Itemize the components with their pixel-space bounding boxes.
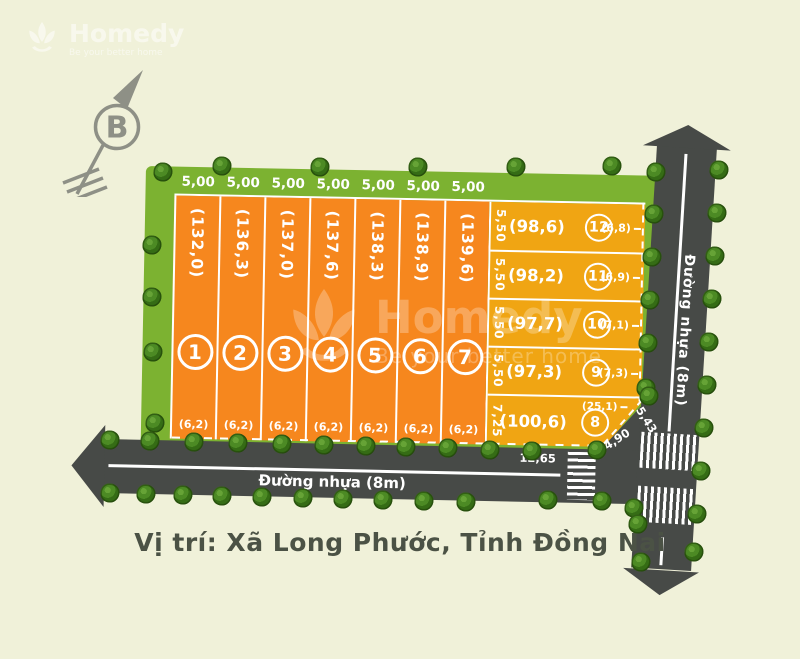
plot-number-badge: 2 — [222, 334, 259, 371]
plot-9: 5,50 (97,3) 9 (7,3) — [488, 346, 643, 397]
plot-frontage-label: (6,2) — [397, 422, 440, 436]
plot-number-badge: 1 — [177, 334, 214, 371]
vertical-plots-block: 5,00 (132,0) 1 (6,2) 5,00 (136,3) 2 (6,2… — [170, 196, 490, 445]
plot-1: 5,00 (132,0) 1 (6,2) — [172, 196, 222, 440]
plot-frontage-label: (6,2) — [262, 419, 305, 433]
site-plan: Homedy Be your better home B 5,00 (132,0… — [0, 0, 800, 659]
plot-width-label: 5,00 — [447, 179, 490, 196]
plot-area-label: (137,0) — [277, 210, 296, 281]
location-caption: Vị trí: Xã Long Phước, Tỉnh Đồng Nai — [0, 528, 800, 557]
junction-width-label: 12,65 — [503, 450, 573, 465]
homedy-logo-icon — [25, 20, 59, 58]
plot-2: 5,00 (136,3) 2 (6,2) — [217, 196, 267, 440]
compass-letter: B — [106, 111, 129, 146]
plot-area-label: (132,0) — [187, 208, 206, 279]
plot-frontage-label: (6,8) — [601, 221, 641, 235]
plot-frontage-label: (6,2) — [352, 421, 395, 435]
plot-frontage-label: (7,3) — [598, 366, 638, 380]
road-arrow-down-icon — [622, 568, 699, 598]
crosswalk-right-road-lower — [636, 486, 694, 525]
plot-frontage-label: (6,2) — [217, 418, 260, 432]
tree-icon — [603, 157, 622, 176]
plot-11: 5,50 (98,2) 11 (6,9) — [490, 250, 645, 301]
road-right-label: Đường nhựa (8m) — [672, 254, 697, 407]
road-arrow-left-icon — [71, 424, 106, 507]
plot-number-badge: 4 — [312, 336, 349, 373]
plot-10: 5,50 (97,7) 10 (7,1) — [489, 298, 644, 349]
plot-width-label: 5,00 — [222, 174, 265, 191]
plot-width-label: 5,00 — [402, 178, 445, 195]
road-bottom: Đường nhựa (8m) 12,65 — [102, 439, 649, 504]
plot-frontage-label: (6,2) — [307, 420, 350, 434]
plot-area-label: (137,6) — [322, 210, 341, 281]
crosswalk-bottom-road — [567, 452, 596, 501]
road-bottom-label: Đường nhựa (8m) — [252, 471, 412, 492]
plot-frontage-label: (6,2) — [172, 418, 215, 432]
plot-frontage-label: (25,1) — [582, 400, 628, 413]
land-parcel: 5,00 (132,0) 1 (6,2) 5,00 (136,3) 2 (6,2… — [140, 166, 663, 468]
horizontal-plots-block: 5,50 (98,6) 12 (6,8) 5,50 (98,2) 11 (6,9… — [485, 202, 646, 448]
plot-4: 5,00 (137,6) 4 (6,2) — [307, 198, 357, 442]
plot-number-badge: 3 — [267, 335, 304, 372]
road-arrow-up-icon — [643, 122, 732, 150]
dimension-tick — [620, 406, 627, 408]
dimension-tick — [633, 277, 640, 279]
plot-7: 5,00 (139,6) 7 (6,2) — [442, 201, 490, 445]
plot-3: 5,00 (137,0) 3 (6,2) — [262, 197, 312, 441]
plot-area-label: (139,6) — [457, 213, 476, 284]
plot-area-label: (97,7) — [497, 313, 573, 333]
plot-width-label: 5,00 — [267, 175, 310, 192]
crosswalk-right-road-upper — [639, 432, 697, 471]
dimension-tick — [634, 228, 641, 230]
plot-area-label: (98,2) — [498, 265, 574, 285]
plot-number-badge: 6 — [402, 338, 439, 375]
plot-number-badge: 7 — [447, 339, 484, 376]
plot-frontage-label: (6,2) — [442, 423, 485, 437]
plot-number-badge: 5 — [357, 337, 394, 374]
dimension-tick — [632, 325, 639, 327]
plot-6: 5,00 (138,9) 6 (6,2) — [397, 200, 447, 444]
plot-frontage-label: (6,9) — [600, 270, 640, 284]
plot-area-label: (138,9) — [412, 212, 431, 283]
plot-5: 5,00 (138,3) 5 (6,2) — [352, 199, 402, 443]
dimension-tick — [631, 373, 638, 375]
plot-area-label: (138,3) — [367, 211, 386, 282]
plot-area-label: (97,3) — [496, 361, 572, 381]
plots-container: 5,00 (132,0) 1 (6,2) 5,00 (136,3) 2 (6,2… — [170, 194, 646, 448]
plot-width-label: 5,00 — [357, 177, 400, 194]
plot-area-label: (100,6) — [495, 411, 571, 431]
plot-area-label: (98,6) — [499, 216, 575, 236]
plot-12: 5,50 (98,6) 12 (6,8) — [490, 202, 645, 253]
plot-frontage-label: (7,1) — [599, 318, 639, 332]
plot-area-label: (136,3) — [232, 209, 251, 280]
north-arrow-icon: B — [55, 52, 185, 197]
watermark-brand: Homedy — [69, 21, 184, 46]
plot-width-label: 5,00 — [312, 176, 355, 193]
